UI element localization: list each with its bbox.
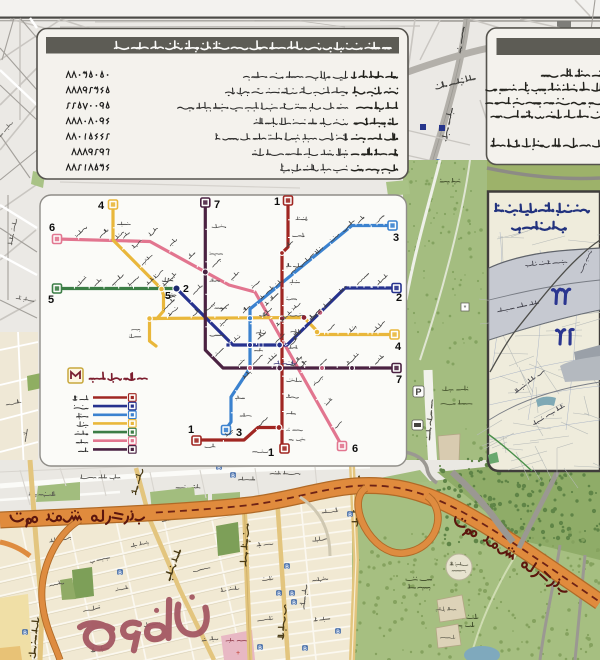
svg-text:B: B <box>23 630 27 636</box>
svg-text:3: 3 <box>393 232 399 244</box>
svg-text:1: 1 <box>274 196 280 208</box>
svg-text:B: B <box>118 570 122 576</box>
svg-text:B: B <box>336 629 340 635</box>
svg-text:4: 4 <box>98 200 105 212</box>
svg-text:6: 6 <box>352 443 358 455</box>
svg-text:B: B <box>303 646 307 652</box>
svg-text:1: 1 <box>268 447 274 459</box>
svg-text:*: * <box>464 305 467 312</box>
svg-text:7: 7 <box>396 374 402 386</box>
svg-text:6: 6 <box>49 222 55 234</box>
svg-text:B: B <box>285 564 289 570</box>
svg-text:1: 1 <box>188 424 194 436</box>
svg-text:B: B <box>277 591 281 597</box>
svg-text:5: 5 <box>165 290 171 302</box>
svg-text:B: B <box>292 600 296 606</box>
svg-text:B: B <box>258 645 262 651</box>
svg-text:5: 5 <box>48 294 54 306</box>
svg-text:+: + <box>236 650 240 657</box>
svg-text:3: 3 <box>236 427 242 439</box>
svg-text:P: P <box>415 387 421 397</box>
svg-text:B: B <box>348 512 352 518</box>
svg-text:2: 2 <box>183 283 189 295</box>
svg-text:B: B <box>231 473 235 479</box>
svg-text:B: B <box>290 591 294 597</box>
svg-text:7: 7 <box>214 199 220 211</box>
svg-text:2: 2 <box>396 292 402 304</box>
svg-text:4: 4 <box>395 341 402 353</box>
